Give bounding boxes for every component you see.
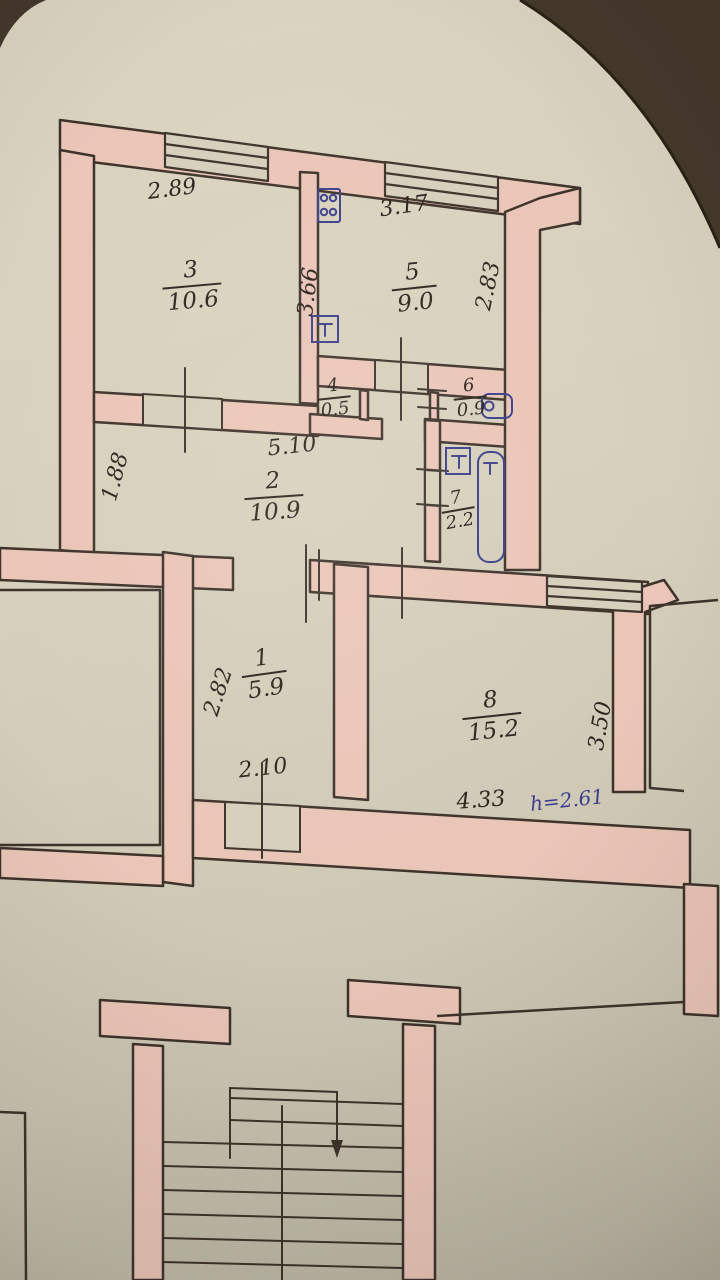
dim-room3-width: 2.89	[146, 176, 197, 204]
room-6-area: 0.9	[454, 395, 489, 420]
room-3-area: 10.6	[162, 282, 223, 315]
room-7-area: 2.2	[442, 506, 478, 533]
dim-room5-depth: 2.83	[473, 260, 505, 312]
room-1-label: 1 5.9	[238, 644, 290, 704]
room-2-area: 10.9	[244, 494, 305, 526]
dim-room1-depth: 2.82	[201, 665, 237, 718]
dim-room2-width: 5.10	[266, 434, 317, 461]
room-1-area: 5.9	[242, 670, 290, 704]
room-7-label: 7 2.2	[438, 486, 477, 533]
floor-plan-photo: 3 10.6 5 9.0 4 0.5 6 0.9 2 10.9 7 2.2 1 …	[0, 0, 720, 1280]
room-4-area: 0.5	[318, 395, 353, 420]
room-2-number: 2	[253, 469, 293, 498]
room-8-area: 15.2	[462, 712, 524, 746]
dim-room8-width: 4.33	[456, 788, 506, 813]
handwritten-labels: 3 10.6 5 9.0 4 0.5 6 0.9 2 10.9 7 2.2 1 …	[0, 0, 720, 1280]
room-5-area: 9.0	[392, 285, 439, 318]
room-5-label: 5 9.0	[389, 259, 439, 317]
dim-room8-depth: 3.50	[586, 700, 616, 752]
dim-room5-width: 3.17	[378, 193, 430, 222]
room-3-label: 3 10.6	[160, 257, 224, 316]
room-8-label: 8 15.2	[460, 686, 525, 746]
room-6-label: 6 0.9	[452, 375, 489, 420]
dim-room2-depth: 1.88	[99, 450, 133, 503]
room-3-number: 3	[170, 257, 211, 286]
room-2-label: 2 10.9	[243, 468, 306, 526]
dim-room1-width: 2.10	[237, 756, 288, 783]
dim-ceiling-height: h=2.61	[529, 786, 605, 814]
dim-room3-depth: 3.66	[295, 266, 323, 317]
room-4-label: 4 0.5	[316, 375, 353, 420]
